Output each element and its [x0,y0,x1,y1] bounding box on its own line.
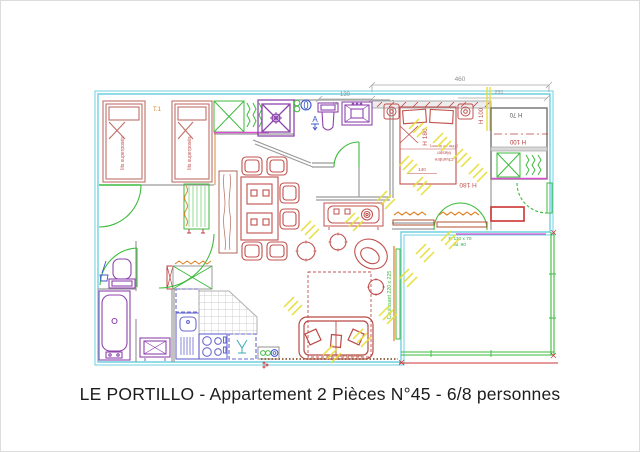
balcony [399,230,558,365]
kitchen-dishwasher [229,334,256,359]
side-height-label: H 100 [479,107,485,124]
bathtub [99,291,130,360]
shelf-h100-label: H 100 [509,138,526,144]
round-table-2 [329,233,348,252]
dim-231: 231 [494,90,503,96]
hall-closet [214,101,269,133]
bunk-bed-1-label: lits superposés [120,136,126,170]
shower [258,100,294,136]
balcony-bench [491,207,524,221]
armchair [349,233,393,275]
bunk-bed-2-label: lits superposés [187,136,193,170]
bed-width-label: 140 [418,167,426,172]
radiator [184,184,209,233]
living-sideboard [324,203,383,230]
bathroom-washbasin [140,338,170,361]
plan-caption: LE PORTILLO - Appartement 2 Pièces N°45 … [1,382,639,406]
section-marker-a-letter: A [312,115,318,124]
dim-130: 130 [340,92,351,98]
balcony-french-doors [393,203,487,230]
floor-plan-page: 460 130 231 16 li [0,0,640,452]
dim-460: 460 [455,76,466,83]
washbasin-hall [342,102,372,125]
kitchen-fridge [176,289,199,312]
entry-closet [167,261,212,289]
kitchen-counter [199,291,257,334]
dining-chairs [242,157,299,260]
toilet-bathroom [109,259,135,288]
slope-hatches [284,119,487,363]
shelf-h70-label: H 70 [509,111,522,117]
dining-table [241,177,278,240]
living-rug [308,272,371,357]
master-room-line2: Master [437,151,452,156]
sliding-door [394,246,400,341]
round-table-3 [367,278,385,296]
toilet-hall [318,103,338,130]
apartment-outline [95,91,553,365]
dining-bench [219,171,237,253]
kitchen-stove [199,334,227,359]
room-height-label: H 180 [459,181,477,188]
section-marker-a: A [311,115,319,130]
utility-icons [294,100,311,112]
kitchen-sink [176,313,199,359]
unit-type-label: T.1 [153,107,162,113]
interior-walls [98,100,491,362]
round-table-1 [296,241,317,262]
master-room-line1: Chambre [434,157,453,162]
dimension-lines [316,82,552,102]
